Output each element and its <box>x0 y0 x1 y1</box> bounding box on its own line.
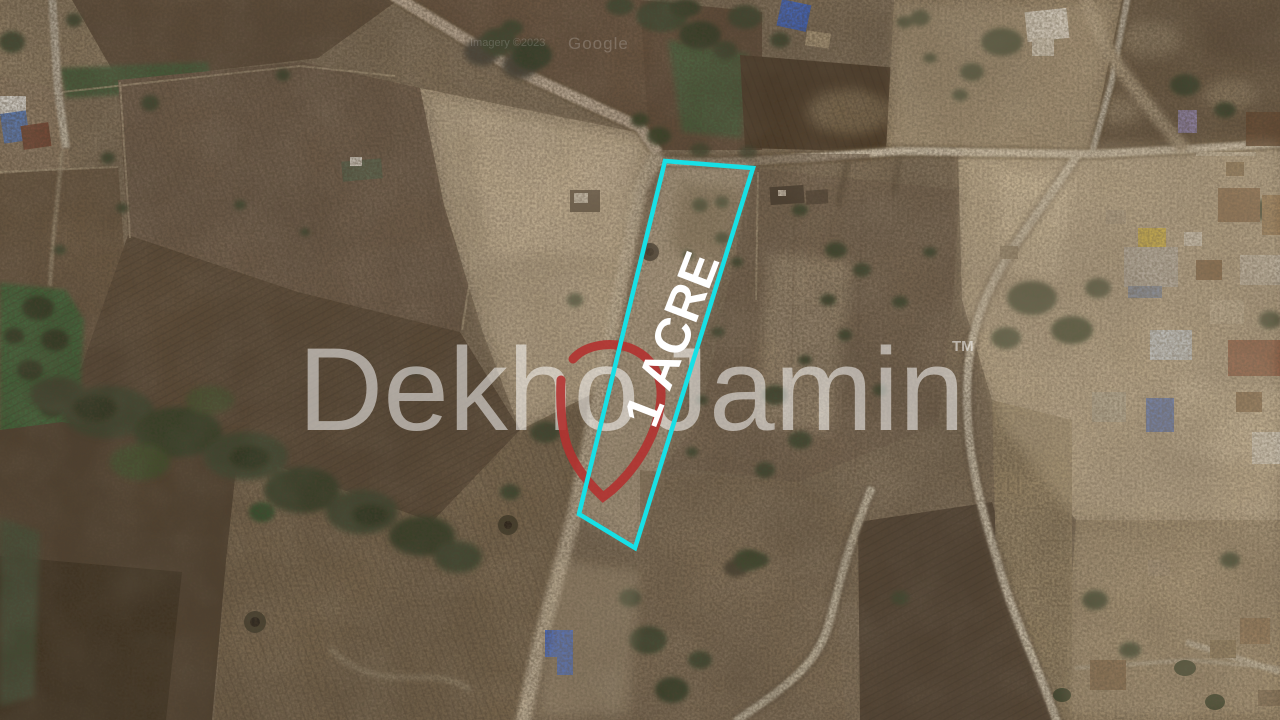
svg-text:Google: Google <box>568 34 629 53</box>
svg-text:TM: TM <box>952 338 974 355</box>
svg-text:Imagery ©2023: Imagery ©2023 <box>470 37 545 49</box>
